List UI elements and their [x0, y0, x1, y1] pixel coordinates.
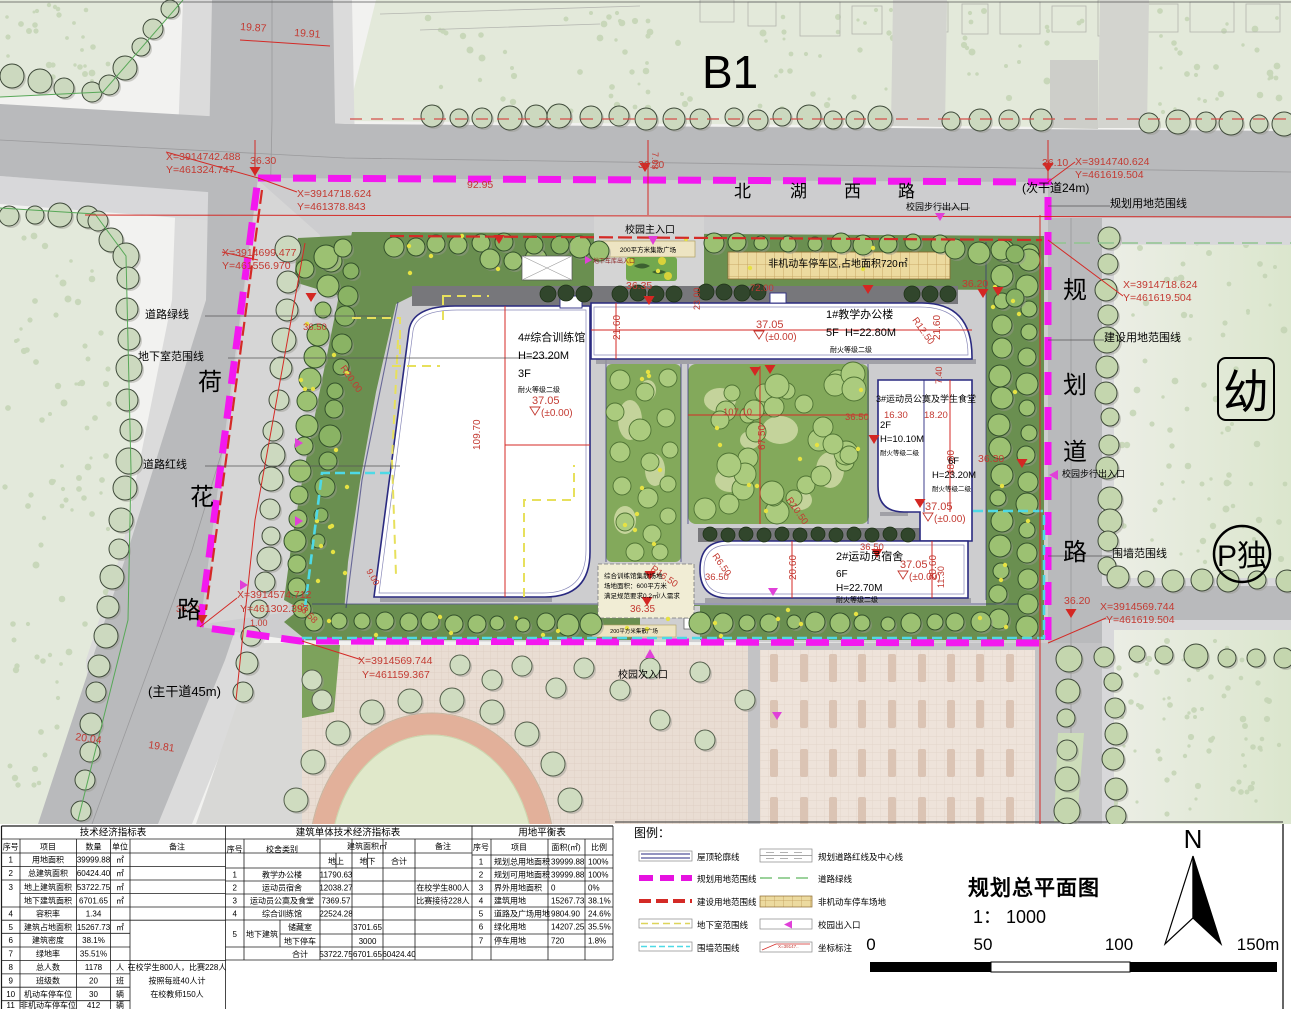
svg-text:(±0.00): (±0.00)	[765, 332, 797, 343]
svg-text:屋顶轮廓线: 屋顶轮廓线	[697, 852, 740, 862]
svg-text:23.00: 23.00	[692, 287, 702, 310]
svg-text:7.03: 7.03	[650, 152, 660, 170]
svg-text:1： 1000: 1： 1000	[973, 907, 1046, 927]
svg-text:建设用地范围线: 建设用地范围线	[697, 897, 757, 907]
svg-text:39999.88: 39999.88	[551, 871, 585, 880]
svg-text:36.20: 36.20	[962, 278, 988, 290]
svg-text:Y=461159.367: Y=461159.367	[362, 669, 430, 681]
svg-text:(±0.00): (±0.00)	[909, 572, 941, 583]
svg-text:围墙范围线: 围墙范围线	[1112, 546, 1167, 560]
svg-text:建筑密度: 建筑密度	[32, 935, 64, 945]
svg-text:36.35: 36.35	[630, 604, 655, 615]
svg-text:道: 道	[1063, 439, 1087, 466]
svg-text:湖: 湖	[790, 182, 807, 201]
svg-text:200平方米集散广场: 200平方米集散广场	[620, 245, 677, 254]
svg-text:3: 3	[8, 883, 13, 892]
svg-text:容积率: 容积率	[36, 909, 60, 919]
svg-text:14207.25: 14207.25	[551, 923, 585, 932]
svg-text:53722.75: 53722.75	[77, 883, 111, 892]
svg-text:规划用地范围线: 规划用地范围线	[697, 874, 757, 884]
svg-text:停车用地: 停车用地	[494, 936, 526, 946]
svg-text:项目: 项目	[40, 843, 56, 852]
svg-text:1.8%: 1.8%	[588, 937, 606, 946]
svg-text:建筑占地面积: 建筑占地面积	[24, 922, 72, 932]
svg-text:地下室范围线: 地下室范围线	[138, 349, 204, 363]
svg-text:35.51%: 35.51%	[80, 950, 107, 959]
svg-text:非机动车停车场地: 非机动车停车场地	[818, 897, 887, 907]
svg-text:15267.73: 15267.73	[551, 897, 585, 906]
svg-text:38.1%: 38.1%	[588, 897, 611, 906]
svg-text:0: 0	[866, 935, 875, 954]
svg-text:Y=461378.843: Y=461378.843	[297, 201, 366, 213]
svg-text:图例：: 图例：	[634, 826, 670, 840]
svg-text:H=10.10M: H=10.10M	[880, 434, 924, 445]
svg-text:37.05: 37.05	[925, 501, 953, 513]
svg-text:Y=461619.504: Y=461619.504	[1106, 614, 1175, 626]
svg-text:(次干道24m): (次干道24m)	[1022, 181, 1089, 195]
svg-text:72.00: 72.00	[750, 283, 774, 294]
svg-text:6F: 6F	[948, 456, 959, 467]
svg-text:规划可用地面积: 规划可用地面积	[494, 870, 550, 880]
svg-text:划: 划	[1063, 372, 1087, 399]
svg-text:720: 720	[551, 937, 565, 946]
svg-text:4: 4	[479, 897, 484, 906]
svg-text:(±0.00): (±0.00)	[541, 408, 573, 419]
svg-text:1: 1	[479, 858, 484, 867]
svg-text:2: 2	[232, 884, 237, 893]
svg-text:地下室范围线: 地下室范围线	[697, 920, 749, 930]
svg-text:37.05: 37.05	[756, 319, 784, 331]
svg-text:60424.40: 60424.40	[382, 950, 416, 959]
svg-text:路: 路	[898, 182, 915, 201]
svg-text:10: 10	[6, 990, 15, 999]
svg-text:5F H=22.80M: 5F H=22.80M	[826, 327, 896, 339]
svg-text:2F: 2F	[880, 420, 891, 431]
svg-text:地下建筑面积: 地下建筑面积	[24, 895, 72, 905]
svg-text:4: 4	[232, 910, 237, 919]
svg-text:3701.65: 3701.65	[353, 923, 382, 932]
svg-text:校舍类别: 校舍类别	[266, 844, 298, 854]
svg-text:3#运动员公寞及学生食堂: 3#运动员公寞及学生食堂	[876, 393, 976, 404]
svg-text:2#运动员宿舍: 2#运动员宿舍	[836, 549, 903, 563]
svg-text:100%: 100%	[588, 871, 608, 880]
svg-text:班级数: 班级数	[36, 976, 60, 986]
svg-text:36.50: 36.50	[845, 412, 869, 423]
svg-text:36.20: 36.20	[1064, 595, 1090, 607]
svg-text:地上建筑面积: 地上建筑面积	[24, 882, 72, 892]
svg-text:综合训练馆: 综合训练馆	[262, 909, 302, 919]
svg-text:3: 3	[479, 884, 484, 893]
svg-text:㎡: ㎡	[116, 923, 124, 932]
svg-text:满足规范要求0.2㎡/人需求: 满足规范要求0.2㎡/人需求	[604, 591, 680, 600]
svg-text:界外用地面积: 界外用地面积	[494, 883, 542, 893]
svg-text:H=23.20M: H=23.20M	[932, 470, 976, 481]
svg-text:用地平衡表: 用地平衡表	[518, 827, 566, 839]
svg-text:Y=461619.504: Y=461619.504	[1123, 292, 1192, 304]
svg-text:比赛接待228人: 比赛接待228人	[416, 896, 469, 906]
svg-text:15267.73: 15267.73	[77, 923, 111, 932]
svg-text:9: 9	[8, 977, 13, 986]
svg-text:耐火等级二级: 耐火等级二级	[880, 448, 920, 457]
svg-text:1.34: 1.34	[86, 910, 102, 919]
svg-text:㎡: ㎡	[116, 856, 124, 865]
svg-text:道路红线: 道路红线	[143, 457, 187, 471]
svg-text:1.00: 1.00	[250, 618, 268, 628]
svg-text:P独: P独	[1217, 540, 1267, 573]
svg-text:X=3914740.624: X=3914740.624	[1075, 156, 1150, 168]
svg-text:规: 规	[1063, 277, 1087, 304]
svg-text:19.87: 19.87	[240, 21, 267, 35]
svg-text:6: 6	[8, 936, 13, 945]
svg-text:地下车库出入口: 地下车库出入口	[593, 257, 635, 265]
svg-text:39999.88: 39999.88	[77, 856, 111, 865]
svg-text:规划总平面图: 规划总平面图	[968, 876, 1100, 900]
svg-text:校园步行出入口: 校园步行出入口	[906, 201, 969, 212]
svg-text:1#教学办公楼: 1#教学办公楼	[826, 307, 893, 321]
svg-text:36.50: 36.50	[303, 322, 327, 333]
svg-text:6F: 6F	[836, 569, 848, 580]
svg-text:道路绿线: 道路绿线	[818, 874, 853, 884]
svg-text:技术经济指标表: 技术经济指标表	[80, 827, 147, 839]
svg-text:4#综合训练馆: 4#综合训练馆	[518, 330, 585, 344]
svg-text:耐火等级二级: 耐火等级二级	[518, 385, 560, 394]
svg-text:B1: B1	[702, 46, 758, 98]
svg-text:(主干道45m): (主干道45m)	[148, 684, 221, 699]
svg-text:单位: 单位	[112, 842, 128, 852]
svg-text:60424.40: 60424.40	[77, 869, 111, 878]
svg-text:4: 4	[8, 910, 13, 919]
svg-text:3000: 3000	[359, 937, 377, 946]
svg-text:0: 0	[551, 884, 556, 893]
svg-text:38.1%: 38.1%	[82, 936, 105, 945]
svg-text:7: 7	[479, 937, 484, 946]
svg-text:X=3914569.744: X=3914569.744	[1100, 601, 1175, 613]
svg-text:N: N	[1184, 824, 1203, 854]
svg-text:在校学生800人: 在校学生800人	[416, 883, 469, 893]
svg-text:规划总用地面积: 规划总用地面积	[494, 857, 550, 867]
svg-text:3F: 3F	[518, 368, 531, 380]
svg-text:30: 30	[89, 990, 98, 999]
svg-text:35.5%: 35.5%	[588, 923, 611, 932]
svg-text:合计: 合计	[391, 856, 407, 866]
svg-text:规划用地范围线: 规划用地范围线	[1110, 196, 1187, 210]
svg-text:机动车停车位: 机动车停车位	[24, 989, 72, 999]
svg-text:建设用地范围线: 建设用地范围线	[1104, 330, 1181, 344]
svg-text:9804.90: 9804.90	[551, 910, 580, 919]
svg-text:X=3914718.624: X=3914718.624	[297, 188, 372, 200]
svg-text:在校教师150人: 在校教师150人	[150, 989, 203, 999]
svg-text:11790.63: 11790.63	[320, 871, 353, 880]
svg-text:39999.88: 39999.88	[551, 858, 585, 867]
svg-text:综合训练馆集散场地: 综合训练馆集散场地	[604, 571, 663, 580]
svg-text:50: 50	[974, 935, 993, 954]
svg-text:项目: 项目	[511, 843, 527, 852]
svg-text:绿地率: 绿地率	[36, 949, 60, 959]
svg-text:100: 100	[1105, 935, 1133, 954]
svg-text:非机动车停车区,占地面积720㎡: 非机动车停车区,占地面积720㎡	[768, 257, 907, 270]
svg-text:2: 2	[479, 871, 484, 880]
svg-text:37.05: 37.05	[532, 395, 560, 407]
svg-text:18.20: 18.20	[924, 410, 948, 421]
svg-text:运动员公寞及食堂: 运动员公寞及食堂	[250, 896, 314, 906]
svg-text:总人数: 总人数	[36, 962, 60, 972]
svg-text:X=3914718.624: X=3914718.624	[1123, 279, 1198, 291]
svg-text:储藏室: 储藏室	[288, 922, 312, 932]
svg-text:地上: 地上	[328, 856, 344, 866]
svg-text:备注: 备注	[435, 841, 451, 851]
svg-text:幼: 幼	[1223, 366, 1269, 418]
svg-text:53722.75: 53722.75	[319, 950, 353, 959]
svg-text:107.10: 107.10	[723, 407, 752, 418]
svg-text:36.30: 36.30	[978, 453, 1004, 465]
svg-text:道路及广场用地: 道路及广场用地	[494, 909, 550, 919]
svg-text:辆: 辆	[116, 989, 124, 999]
svg-text:合计: 合计	[292, 949, 308, 959]
svg-text:面积(㎡): 面积(㎡)	[551, 842, 581, 852]
svg-text:运动员宿舍: 运动员宿舍	[262, 883, 302, 893]
svg-text:Y=461619.504: Y=461619.504	[1075, 169, 1144, 181]
svg-text:412: 412	[87, 1001, 101, 1009]
svg-text:辆: 辆	[116, 1000, 124, 1009]
svg-text:序号: 序号	[227, 844, 243, 854]
svg-text:㎡: ㎡	[116, 896, 124, 905]
svg-text:200平方米集散广场: 200平方米集散广场	[610, 627, 658, 635]
svg-text:校园步行出入口: 校园步行出入口	[1062, 468, 1125, 479]
svg-text:用地面积: 用地面积	[32, 855, 64, 865]
svg-text:20: 20	[89, 977, 98, 986]
svg-text:规划道路红线及中心线: 规划道路红线及中心线	[818, 852, 904, 862]
svg-text:建筑用地: 建筑用地	[494, 896, 526, 906]
svg-text:比例: 比例	[591, 842, 607, 852]
svg-text:2: 2	[8, 869, 13, 878]
svg-text:X=3914699.477: X=3914699.477	[222, 247, 297, 259]
svg-text:按照每班40人计: 按照每班40人计	[149, 976, 206, 986]
svg-text:19.91: 19.91	[294, 27, 321, 41]
svg-text:0%: 0%	[588, 884, 600, 893]
svg-text:数量: 数量	[86, 842, 102, 852]
svg-text:6: 6	[479, 923, 484, 932]
svg-text:11: 11	[7, 1001, 16, 1009]
svg-text:㎡: ㎡	[116, 883, 124, 892]
svg-text:场地面积：600平方米: 场地面积：600平方米	[604, 581, 667, 590]
svg-text:24.6%: 24.6%	[588, 910, 611, 919]
svg-text:1178: 1178	[85, 963, 103, 972]
svg-text:5: 5	[479, 910, 484, 919]
svg-text:36.30: 36.30	[250, 155, 276, 167]
svg-text:人: 人	[116, 963, 124, 972]
svg-text:37.05: 37.05	[900, 559, 928, 571]
svg-text:路: 路	[177, 597, 201, 624]
svg-text:7369.57: 7369.57	[322, 897, 351, 906]
svg-text:H=22.70M: H=22.70M	[836, 583, 882, 594]
svg-text:路: 路	[1063, 539, 1087, 566]
svg-text:花: 花	[190, 484, 214, 511]
svg-text:非机动车停车位: 非机动车停车位	[20, 1000, 76, 1009]
svg-text:20.60: 20.60	[788, 555, 799, 580]
svg-text:校园出入口: 校园出入口	[818, 920, 861, 930]
svg-text:5: 5	[232, 930, 237, 939]
svg-text:100%: 100%	[588, 858, 608, 867]
svg-text:12038.27: 12038.27	[319, 884, 353, 893]
svg-text:8: 8	[8, 963, 13, 972]
svg-text:序号: 序号	[473, 842, 489, 852]
svg-text:H=23.20M: H=23.20M	[518, 350, 569, 362]
svg-text:36.35: 36.35	[626, 280, 652, 292]
svg-text:北: 北	[734, 182, 751, 201]
svg-text:地下: 地下	[360, 856, 376, 866]
svg-text:坐标标注: 坐标标注	[818, 943, 853, 953]
svg-text:地下建筑: 地下建筑	[246, 929, 278, 939]
svg-text:校园次入口: 校园次入口	[618, 668, 668, 681]
svg-text:5: 5	[8, 923, 13, 932]
svg-text:建筑面积㎡: 建筑面积㎡	[347, 841, 387, 851]
svg-text:22524.28: 22524.28	[319, 910, 353, 919]
svg-text:地下停车: 地下停车	[284, 936, 316, 946]
svg-text:1: 1	[8, 856, 13, 865]
svg-text:1: 1	[232, 871, 237, 880]
svg-text:耐火等级二级: 耐火等级二级	[830, 345, 872, 354]
svg-text:班: 班	[116, 976, 124, 986]
svg-text:Y=461324.747: Y=461324.747	[166, 164, 235, 176]
svg-text:Y=461556.970: Y=461556.970	[222, 260, 291, 272]
svg-text:7: 7	[8, 950, 13, 959]
svg-text:92.95: 92.95	[467, 179, 493, 191]
svg-text:3: 3	[232, 897, 237, 906]
svg-text:西: 西	[844, 182, 861, 201]
svg-text:总建筑面积: 总建筑面积	[28, 868, 68, 878]
svg-text:67.50: 67.50	[757, 425, 768, 450]
svg-text:校园主入口: 校园主入口	[625, 223, 675, 236]
svg-text:7.40: 7.40	[934, 366, 944, 384]
svg-text:道路绿线: 道路绿线	[145, 307, 189, 321]
svg-text:序号: 序号	[3, 842, 19, 852]
svg-text:X=3914574.712: X=3914574.712	[237, 589, 312, 601]
svg-text:(±0.00): (±0.00)	[934, 514, 966, 525]
svg-text:荷: 荷	[198, 369, 222, 396]
svg-text:6701.65: 6701.65	[79, 896, 108, 905]
svg-text:㎡: ㎡	[116, 869, 124, 878]
svg-text:21.60: 21.60	[612, 315, 623, 340]
svg-text:109.70: 109.70	[472, 419, 483, 450]
svg-text:耐火等级二级: 耐火等级二级	[932, 484, 972, 493]
svg-text:36.10: 36.10	[1042, 157, 1068, 169]
svg-text:建筑单体技术经济指标表: 建筑单体技术经济指标表	[296, 827, 401, 839]
svg-text:备注: 备注	[169, 842, 185, 852]
svg-text:X=3914742.488: X=3914742.488	[166, 151, 241, 163]
svg-text:在校学生800人，比赛228人: 在校学生800人，比赛228人	[128, 962, 227, 972]
svg-text:教学办公楼: 教学办公楼	[262, 870, 302, 880]
svg-text:X=3914569.744: X=3914569.744	[358, 655, 433, 667]
svg-text:6701.65: 6701.65	[353, 950, 382, 959]
svg-text:X=39147..: X=39147..	[778, 944, 799, 949]
svg-text:耐火等级二级: 耐火等级二级	[836, 595, 878, 604]
svg-text:150m: 150m	[1237, 935, 1280, 954]
svg-text:绿化用地: 绿化用地	[494, 922, 526, 932]
svg-text:围墙范围线: 围墙范围线	[697, 943, 740, 953]
